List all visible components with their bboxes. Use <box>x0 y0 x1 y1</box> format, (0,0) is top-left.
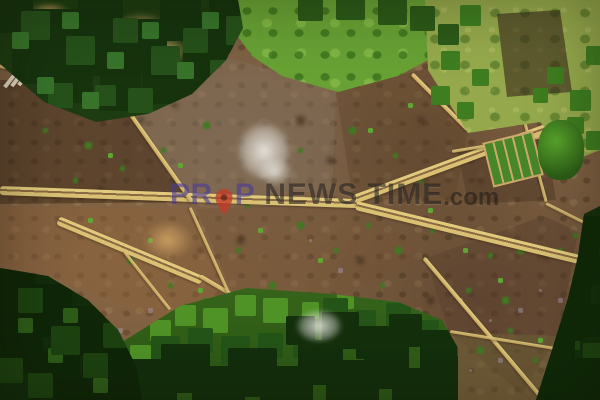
watermark: PR P NEWS TIME .com <box>170 180 499 210</box>
watermark-main-text: NEWS TIME <box>264 180 443 210</box>
soil-patch <box>146 36 188 66</box>
watermark-brand-prefix: PR <box>170 180 213 210</box>
white-patch <box>288 304 350 348</box>
watermark-domain-suffix: .com <box>443 185 499 210</box>
aerial-photo: PR P NEWS TIME .com <box>0 0 600 400</box>
watermark-brand-suffix: P <box>235 180 256 210</box>
tree-canopy <box>0 0 1 1</box>
soil-patch <box>28 2 70 22</box>
tree-clump <box>538 120 584 180</box>
soil-patch <box>190 48 216 62</box>
location-pin-icon <box>214 188 234 216</box>
